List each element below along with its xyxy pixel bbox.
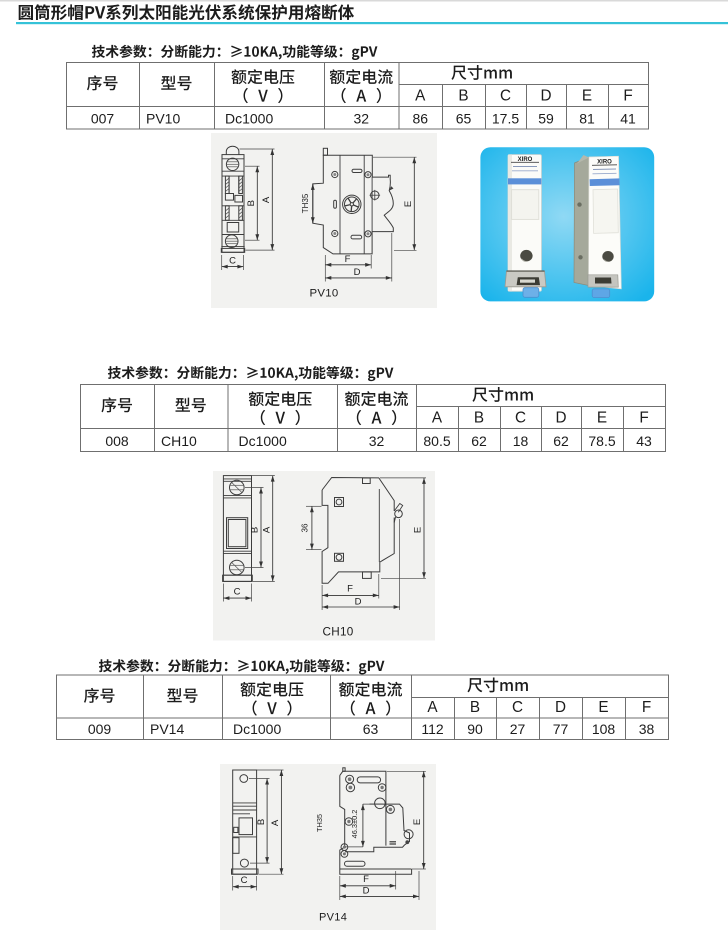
svg-text:C: C <box>234 587 241 598</box>
svg-text:F: F <box>345 254 351 265</box>
svg-text:B: B <box>246 200 257 206</box>
svg-text:A: A <box>270 819 281 826</box>
svg-text:D: D <box>555 409 566 426</box>
svg-text:PV10: PV10 <box>146 110 180 126</box>
svg-text:Dc1000: Dc1000 <box>233 721 281 737</box>
svg-text:108: 108 <box>592 721 616 737</box>
svg-text:32: 32 <box>369 433 385 449</box>
svg-text:B: B <box>250 527 261 533</box>
svg-text:D: D <box>540 87 551 104</box>
svg-text:65: 65 <box>456 110 472 126</box>
svg-text:CH10: CH10 <box>161 433 197 449</box>
svg-text:PV14: PV14 <box>150 721 184 737</box>
svg-text:F: F <box>623 87 632 104</box>
svg-text:78.5: 78.5 <box>588 433 615 449</box>
svg-text:A: A <box>432 409 443 426</box>
svg-text:E: E <box>597 409 607 426</box>
svg-text:90: 90 <box>467 721 483 737</box>
svg-text:E: E <box>403 201 414 207</box>
svg-text:A: A <box>427 699 438 716</box>
svg-text:B: B <box>458 87 468 104</box>
svg-text:18: 18 <box>513 433 529 449</box>
svg-text:E: E <box>582 87 592 104</box>
svg-text:C: C <box>512 699 523 716</box>
svg-text:F: F <box>642 699 651 716</box>
svg-text:36: 36 <box>301 523 310 532</box>
svg-text:D: D <box>555 699 566 716</box>
svg-text:43: 43 <box>636 433 652 449</box>
svg-text:B: B <box>474 409 484 426</box>
svg-text:C: C <box>229 256 236 267</box>
svg-text:59: 59 <box>538 110 554 126</box>
svg-text:C: C <box>500 87 511 104</box>
svg-text:F: F <box>363 874 369 885</box>
svg-text:46.3±0.2: 46.3±0.2 <box>350 810 359 839</box>
svg-text:A: A <box>415 87 426 104</box>
svg-text:A: A <box>261 526 272 533</box>
svg-text:TH35: TH35 <box>315 814 324 832</box>
svg-text:38: 38 <box>639 721 655 737</box>
svg-text:112: 112 <box>421 721 444 737</box>
svg-text:17.5: 17.5 <box>492 110 519 126</box>
svg-text:80.5: 80.5 <box>423 433 450 449</box>
svg-text:E: E <box>412 819 423 825</box>
svg-text:B: B <box>470 699 480 716</box>
svg-text:PV14: PV14 <box>319 912 347 924</box>
svg-text:CH10: CH10 <box>323 626 354 639</box>
svg-text:86: 86 <box>412 110 428 126</box>
svg-text:F: F <box>347 584 353 595</box>
svg-text:A: A <box>261 196 272 203</box>
svg-text:C: C <box>241 875 248 886</box>
svg-text:B: B <box>256 819 267 825</box>
svg-text:C: C <box>515 409 526 426</box>
svg-text:62: 62 <box>471 433 487 449</box>
svg-text:41: 41 <box>620 110 636 126</box>
svg-text:D: D <box>354 267 361 278</box>
svg-text:32: 32 <box>353 110 369 126</box>
svg-text:62: 62 <box>553 433 569 449</box>
svg-text:E: E <box>598 699 608 716</box>
svg-text:007: 007 <box>91 110 115 126</box>
svg-text:77: 77 <box>553 721 569 737</box>
svg-text:Dc1000: Dc1000 <box>239 433 287 449</box>
svg-text:E: E <box>412 527 423 533</box>
svg-text:D: D <box>355 597 362 608</box>
svg-text:009: 009 <box>88 721 112 737</box>
svg-text:008: 008 <box>105 433 129 449</box>
svg-text:Dc1000: Dc1000 <box>225 110 273 126</box>
svg-text:F: F <box>639 409 648 426</box>
svg-text:81: 81 <box>579 110 595 126</box>
svg-text:PV10: PV10 <box>310 288 339 300</box>
svg-text:TH35: TH35 <box>301 193 310 213</box>
svg-text:63: 63 <box>363 721 379 737</box>
svg-text:27: 27 <box>510 721 526 737</box>
svg-text:D: D <box>363 886 370 897</box>
